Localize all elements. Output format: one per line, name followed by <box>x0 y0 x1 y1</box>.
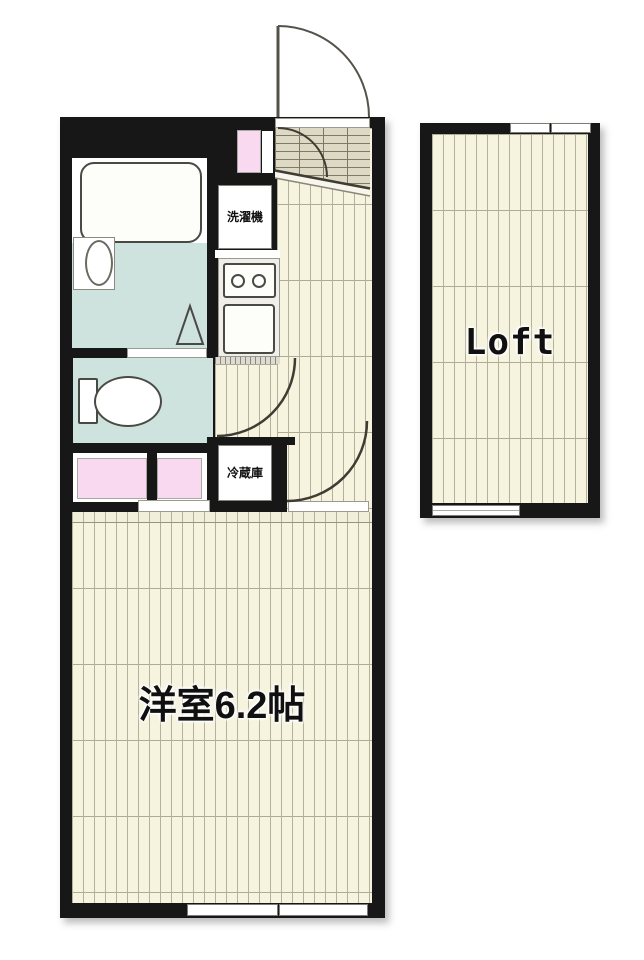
stove-burner-right <box>252 274 266 288</box>
kitchen-floor <box>215 364 277 437</box>
wash-basin-bowl <box>85 240 113 286</box>
main-room-door-threshold <box>288 501 369 512</box>
shoe-cabinet <box>237 130 261 173</box>
toilet-bowl <box>94 376 162 427</box>
shoe-cabinet-side <box>262 131 273 173</box>
stove-burner-left <box>231 274 245 288</box>
refrigerator-space: 冷蔵庫 <box>218 445 272 501</box>
vanity-cabinet <box>77 458 147 499</box>
loft-window-bottom <box>432 505 520 516</box>
washing-machine-space: 洗濯機 <box>218 185 272 249</box>
entrance-threshold <box>275 118 370 128</box>
vanity-divider-wall <box>147 453 157 502</box>
loft-window-top-left-pane <box>510 123 550 133</box>
main-room-window-left <box>187 904 278 916</box>
front-door-swing-arc <box>278 26 369 117</box>
storage-cabinet <box>157 458 202 499</box>
loft-floor <box>432 134 588 503</box>
fridge-nook-wall-top <box>207 437 295 445</box>
loft-window-top-right-pane <box>551 123 591 133</box>
kitchen-counter-gap <box>215 250 280 258</box>
loft-label: Loft <box>425 320 595 364</box>
main-room-label: 洋室6.2帖 <box>72 678 372 724</box>
washing-machine-label: 洗濯機 <box>227 211 263 223</box>
fridge-nook-wall-right <box>272 445 287 512</box>
refrigerator-label: 冷蔵庫 <box>227 467 263 479</box>
main-room-floor-border-strip <box>72 512 372 523</box>
toilet-door <box>127 348 207 358</box>
kitchen-counter-edge <box>215 357 280 364</box>
main-room-window-right <box>279 904 368 916</box>
kitchen-sink <box>223 304 275 354</box>
floor-plan: 洗濯機 冷蔵庫 洋室6.2帖 Loft <box>0 0 644 960</box>
bathtub <box>80 162 202 243</box>
washroom-door <box>138 500 210 512</box>
